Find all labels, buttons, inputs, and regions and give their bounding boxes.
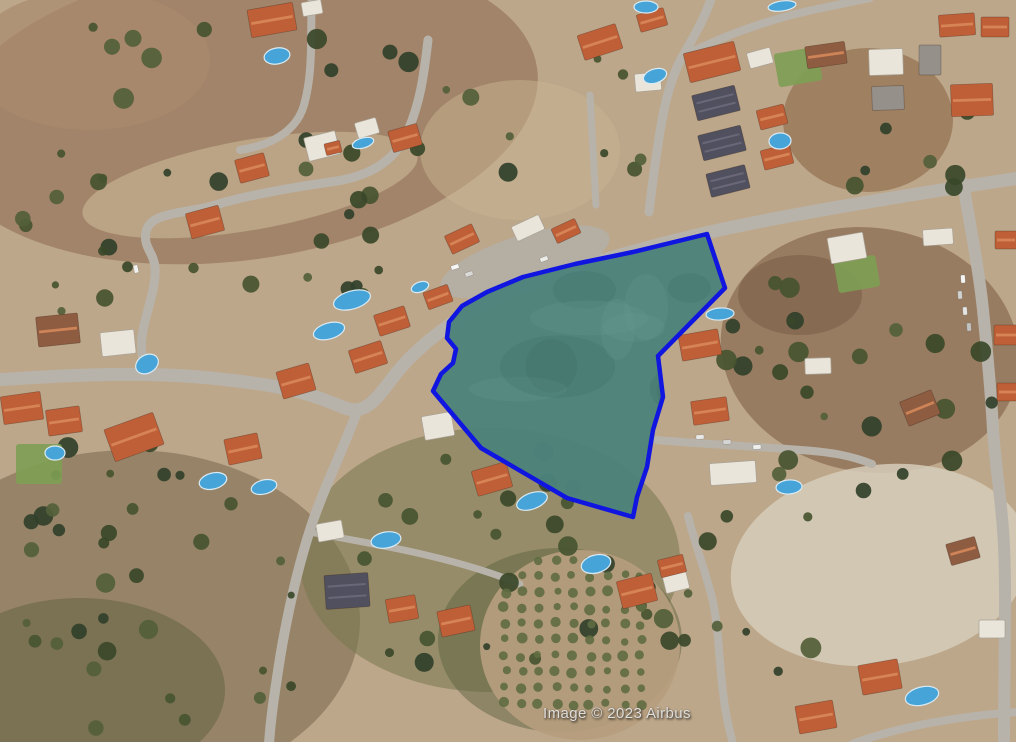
tree bbox=[846, 177, 864, 195]
tree bbox=[49, 190, 64, 205]
orchard-tree bbox=[517, 604, 526, 613]
orchard-tree bbox=[635, 650, 644, 659]
parcel-texture-blob bbox=[500, 336, 615, 398]
orchard-tree bbox=[535, 635, 544, 644]
tree bbox=[483, 643, 490, 650]
orchard-tree bbox=[534, 557, 542, 565]
tree bbox=[558, 536, 578, 556]
tree bbox=[678, 634, 691, 647]
house-roof bbox=[805, 358, 832, 375]
orchard-tree bbox=[622, 570, 630, 578]
orchard-tree bbox=[503, 666, 511, 674]
tree bbox=[98, 613, 109, 624]
tree bbox=[98, 538, 109, 549]
orchard-tree bbox=[519, 667, 528, 676]
orchard-tree bbox=[516, 653, 525, 662]
orchard-tree bbox=[570, 683, 578, 691]
car bbox=[958, 291, 963, 299]
car bbox=[967, 323, 972, 331]
orchard-tree bbox=[500, 619, 510, 629]
tree bbox=[800, 386, 813, 399]
tree bbox=[618, 69, 628, 79]
tree bbox=[46, 503, 60, 517]
tree bbox=[415, 653, 434, 672]
tree bbox=[129, 568, 144, 583]
orchard-tree bbox=[501, 588, 511, 598]
swimming-pool bbox=[45, 446, 65, 460]
parcel-texture-blob bbox=[668, 273, 711, 302]
tree bbox=[276, 556, 285, 565]
house bbox=[0, 391, 44, 424]
orchard-tree bbox=[555, 588, 562, 595]
orchard-tree bbox=[587, 652, 597, 662]
tree bbox=[440, 454, 451, 465]
tree bbox=[122, 261, 133, 272]
house bbox=[979, 620, 1005, 638]
tree bbox=[986, 397, 998, 409]
house-roof bbox=[709, 460, 756, 485]
tree bbox=[15, 211, 31, 227]
tree bbox=[712, 621, 723, 632]
tree bbox=[942, 451, 963, 472]
orchard-tree bbox=[501, 634, 509, 642]
roof-ridge bbox=[997, 239, 1015, 242]
car bbox=[963, 307, 968, 315]
house bbox=[691, 397, 730, 426]
house-roof bbox=[979, 620, 1005, 638]
house-roof bbox=[872, 85, 905, 110]
aerial-view: Image © 2023 Airbus bbox=[0, 0, 1016, 742]
tree bbox=[357, 551, 372, 566]
tree bbox=[163, 169, 171, 177]
tree bbox=[157, 468, 171, 482]
orchard-tree bbox=[535, 604, 544, 613]
tree bbox=[57, 150, 65, 158]
tree bbox=[88, 720, 103, 735]
orchard-tree bbox=[517, 699, 526, 708]
orchard-tree bbox=[568, 633, 579, 644]
tree bbox=[314, 233, 330, 249]
orchard-tree bbox=[638, 635, 647, 644]
car bbox=[723, 440, 731, 445]
orchard-tree bbox=[602, 653, 611, 662]
house-roof bbox=[100, 329, 136, 356]
tree bbox=[420, 631, 436, 647]
tree bbox=[374, 266, 383, 275]
orchard-tree bbox=[585, 685, 593, 693]
tree bbox=[772, 364, 788, 380]
tree bbox=[506, 132, 514, 140]
car bbox=[961, 275, 966, 283]
tree bbox=[86, 661, 101, 676]
tree bbox=[188, 263, 198, 273]
tree bbox=[344, 209, 354, 219]
tree bbox=[96, 573, 115, 592]
house bbox=[858, 659, 903, 695]
tree bbox=[499, 163, 518, 182]
house bbox=[938, 13, 975, 37]
tree bbox=[127, 503, 139, 515]
house bbox=[997, 383, 1016, 401]
orchard-tree bbox=[604, 571, 613, 580]
orchard-tree bbox=[636, 621, 645, 630]
orchard-tree bbox=[552, 651, 560, 659]
tree bbox=[880, 123, 892, 135]
tree bbox=[755, 346, 764, 355]
tree bbox=[889, 323, 903, 337]
tree bbox=[820, 413, 828, 421]
tree bbox=[788, 317, 795, 324]
tree bbox=[490, 529, 501, 540]
tree bbox=[24, 542, 39, 557]
tree bbox=[726, 319, 741, 334]
tree bbox=[286, 681, 296, 691]
house bbox=[795, 700, 837, 734]
attribution-watermark: Image © 2023 Airbus bbox=[543, 705, 691, 722]
orchard-tree bbox=[602, 585, 613, 596]
orchard-tree bbox=[551, 573, 560, 582]
house bbox=[100, 329, 136, 356]
orchard-tree bbox=[621, 685, 630, 694]
tree bbox=[600, 149, 608, 157]
tree bbox=[139, 620, 158, 639]
orchard-tree bbox=[570, 619, 579, 628]
tree bbox=[51, 637, 64, 650]
tree bbox=[779, 278, 799, 298]
orchard-tree bbox=[587, 620, 595, 628]
house bbox=[981, 17, 1009, 37]
orchard-tree bbox=[534, 619, 543, 628]
tree bbox=[96, 289, 113, 306]
tree bbox=[926, 334, 945, 353]
tree bbox=[801, 638, 822, 659]
orchard-tree bbox=[500, 683, 508, 691]
tree bbox=[259, 667, 267, 675]
tree bbox=[179, 714, 191, 726]
car bbox=[753, 445, 761, 450]
tree bbox=[654, 609, 673, 628]
orchard-tree bbox=[584, 604, 595, 615]
orchard-tree bbox=[604, 667, 611, 674]
tree bbox=[742, 628, 750, 636]
tree bbox=[106, 470, 114, 478]
tree bbox=[303, 273, 312, 282]
tree bbox=[125, 30, 142, 47]
orchard-tree bbox=[601, 618, 610, 627]
orchard-tree bbox=[586, 587, 596, 597]
tree bbox=[141, 48, 162, 69]
tree bbox=[53, 524, 65, 536]
orchard-tree bbox=[567, 650, 577, 660]
tree bbox=[98, 246, 107, 255]
tree bbox=[862, 416, 882, 436]
house bbox=[421, 412, 455, 441]
house bbox=[869, 48, 904, 75]
tree bbox=[299, 162, 314, 177]
tree bbox=[288, 592, 295, 599]
tree bbox=[197, 22, 212, 37]
house bbox=[950, 83, 993, 116]
tree bbox=[401, 508, 418, 525]
tree bbox=[324, 63, 338, 77]
tree bbox=[774, 667, 783, 676]
orchard-tree bbox=[602, 636, 610, 644]
orchard-tree bbox=[566, 668, 577, 679]
tree bbox=[98, 642, 117, 661]
tree bbox=[385, 648, 394, 657]
tree bbox=[165, 693, 175, 703]
orchard-tree bbox=[516, 683, 526, 693]
swimming-pool bbox=[634, 1, 658, 13]
house-roof bbox=[922, 228, 953, 246]
tree bbox=[546, 516, 564, 534]
orchard-tree bbox=[534, 587, 544, 597]
tree bbox=[224, 497, 237, 510]
tree bbox=[660, 632, 678, 650]
orchard-tree bbox=[585, 635, 594, 644]
tree bbox=[29, 635, 42, 648]
orchard-tree bbox=[570, 602, 578, 610]
orchard-tree bbox=[637, 668, 645, 676]
house bbox=[805, 358, 832, 375]
orchard-tree bbox=[638, 684, 646, 692]
tree bbox=[378, 493, 393, 508]
roof-ridge bbox=[996, 334, 1016, 337]
tree bbox=[71, 624, 87, 640]
house bbox=[872, 85, 905, 110]
orchard-tree bbox=[551, 617, 561, 627]
orchard-tree bbox=[553, 682, 562, 691]
tree bbox=[242, 276, 259, 293]
roof-ridge bbox=[999, 391, 1016, 394]
orchard-tree bbox=[620, 668, 629, 677]
house-roof bbox=[421, 412, 455, 441]
tree bbox=[856, 483, 872, 499]
orchard-tree bbox=[498, 601, 509, 612]
tree bbox=[462, 89, 479, 106]
orchard-tree bbox=[533, 683, 542, 692]
orchard-tree bbox=[552, 556, 561, 565]
tree bbox=[852, 349, 868, 365]
tree bbox=[778, 450, 798, 470]
tree bbox=[721, 510, 734, 523]
tree bbox=[897, 468, 909, 480]
orchard-tree bbox=[603, 686, 611, 694]
house bbox=[36, 313, 81, 347]
orchard-tree bbox=[518, 618, 526, 626]
tree bbox=[383, 45, 398, 60]
orchard-tree bbox=[569, 556, 577, 564]
orchard-tree bbox=[554, 603, 561, 610]
orchard-tree bbox=[549, 666, 559, 676]
orchard-tree bbox=[602, 606, 610, 614]
house-roof bbox=[869, 48, 904, 75]
tree bbox=[699, 532, 717, 550]
tree bbox=[104, 39, 120, 55]
house bbox=[709, 460, 756, 485]
tree bbox=[350, 191, 367, 208]
orchard-tree bbox=[567, 571, 575, 579]
house-roof bbox=[324, 573, 370, 610]
tree bbox=[254, 692, 266, 704]
orchard-tree bbox=[621, 638, 628, 645]
orchard-tree bbox=[585, 666, 595, 676]
tree bbox=[23, 619, 31, 627]
orchard-tree bbox=[617, 651, 628, 662]
house bbox=[922, 228, 953, 246]
satellite-map bbox=[0, 0, 1016, 742]
house bbox=[994, 325, 1016, 345]
orchard-tree bbox=[499, 651, 508, 660]
tree bbox=[193, 534, 209, 550]
tree bbox=[24, 514, 39, 529]
orchard-tree bbox=[568, 588, 578, 598]
tree bbox=[684, 589, 693, 598]
roof-ridge bbox=[983, 26, 1007, 29]
tree bbox=[362, 227, 379, 244]
tree bbox=[971, 341, 992, 362]
orchard-tree bbox=[517, 633, 528, 644]
orchard-tree bbox=[534, 571, 543, 580]
tree bbox=[473, 510, 482, 519]
tree bbox=[175, 471, 184, 480]
orchard-tree bbox=[532, 699, 542, 709]
tree bbox=[923, 155, 937, 169]
car bbox=[696, 435, 704, 440]
orchard-tree bbox=[551, 634, 561, 644]
house bbox=[919, 45, 941, 75]
tree bbox=[803, 512, 812, 521]
tree bbox=[113, 88, 134, 109]
tree bbox=[89, 23, 98, 32]
house-roof bbox=[919, 45, 941, 75]
orchard-tree bbox=[585, 573, 594, 582]
orchard-tree bbox=[620, 619, 630, 629]
orchard-tree bbox=[518, 571, 526, 579]
parcel-texture-blob bbox=[601, 299, 635, 360]
house bbox=[385, 595, 419, 624]
orchard-tree bbox=[534, 651, 541, 658]
house bbox=[995, 231, 1016, 249]
orchard-tree bbox=[499, 697, 509, 707]
house bbox=[45, 406, 82, 436]
orchard-tree bbox=[518, 586, 528, 596]
tree bbox=[860, 166, 870, 176]
tree bbox=[500, 490, 516, 506]
tree bbox=[398, 52, 418, 72]
tree bbox=[443, 86, 451, 94]
tree bbox=[772, 467, 786, 481]
tree bbox=[90, 173, 107, 190]
tree bbox=[307, 29, 327, 49]
tree bbox=[52, 281, 59, 288]
tree bbox=[945, 165, 965, 185]
orchard-tree bbox=[534, 667, 543, 676]
house bbox=[324, 573, 370, 610]
tree bbox=[209, 172, 228, 191]
tree bbox=[635, 154, 647, 166]
